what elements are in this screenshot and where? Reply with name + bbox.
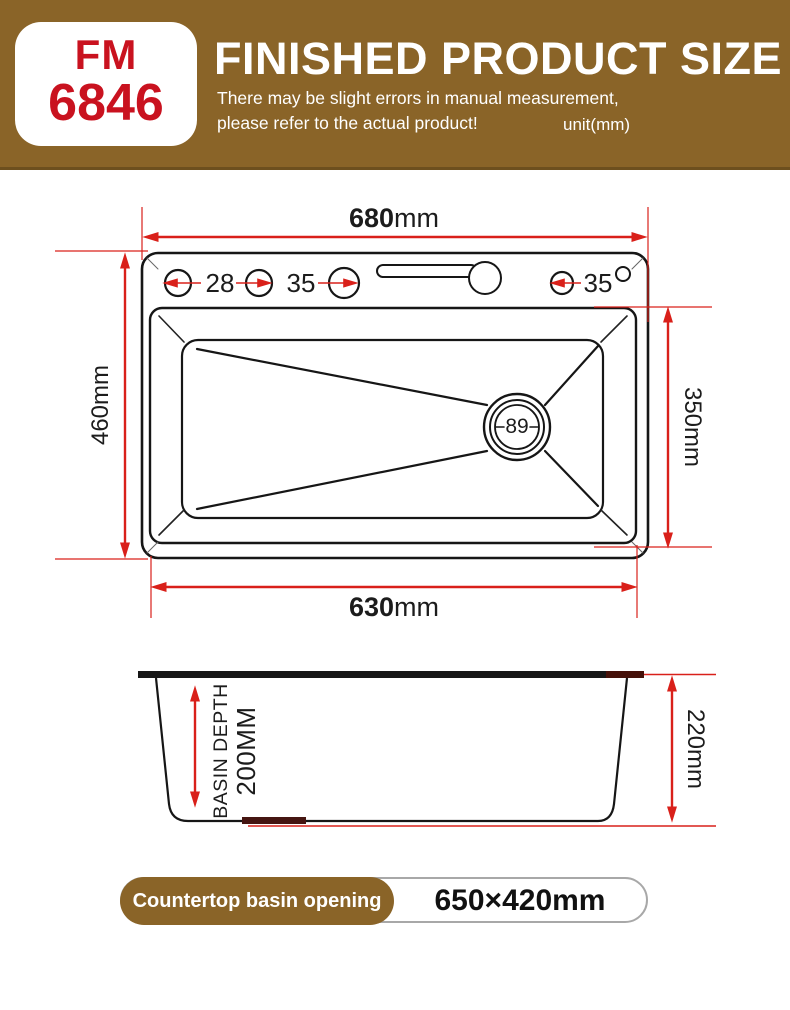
dim-680-arrow-right bbox=[632, 233, 646, 242]
dimension-annotations bbox=[55, 207, 716, 826]
hole-diameter-35-label: 35 bbox=[276, 269, 326, 297]
countertop-opening-pill: Countertop basin opening 650×420mm bbox=[120, 877, 648, 923]
sink-outer-rim bbox=[142, 253, 648, 558]
dim-680-label: 680mm bbox=[294, 203, 494, 233]
dim-630-label: 630mm bbox=[294, 592, 494, 622]
top-view-outline bbox=[142, 253, 648, 558]
countertop-opening-chip: Countertop basin opening bbox=[120, 877, 394, 925]
side-top-dark-mark bbox=[606, 671, 644, 678]
sink-dimension-drawing bbox=[0, 0, 790, 1010]
drain-diameter-label: 89 bbox=[492, 414, 542, 440]
product-size-infographic: FM 6846 FINISHED PRODUCT SIZE There may … bbox=[0, 0, 790, 1010]
countertop-opening-value: 650×420mm bbox=[394, 879, 646, 923]
bowl-rim bbox=[150, 308, 636, 543]
dim-350-label: 350mm bbox=[677, 347, 707, 507]
dim-220-label: 220mm bbox=[680, 669, 710, 829]
dim-630-unit: mm bbox=[394, 592, 439, 622]
dim-680-value: 680 bbox=[349, 203, 394, 233]
hole-diameter-28-label: 28 bbox=[195, 269, 245, 297]
basin-depth-value: 200MM bbox=[232, 671, 260, 831]
hole-diameter-35-right-label: 35 bbox=[573, 269, 623, 297]
dim-630-value: 630 bbox=[349, 592, 394, 622]
deck-slot-circle bbox=[469, 262, 501, 294]
dim-680-unit: mm bbox=[394, 203, 439, 233]
dim-460-label: 460mm bbox=[86, 325, 116, 485]
dim-680-arrow-left bbox=[144, 233, 158, 242]
deck-slot bbox=[377, 265, 477, 277]
rim-corner-marks bbox=[147, 258, 643, 553]
